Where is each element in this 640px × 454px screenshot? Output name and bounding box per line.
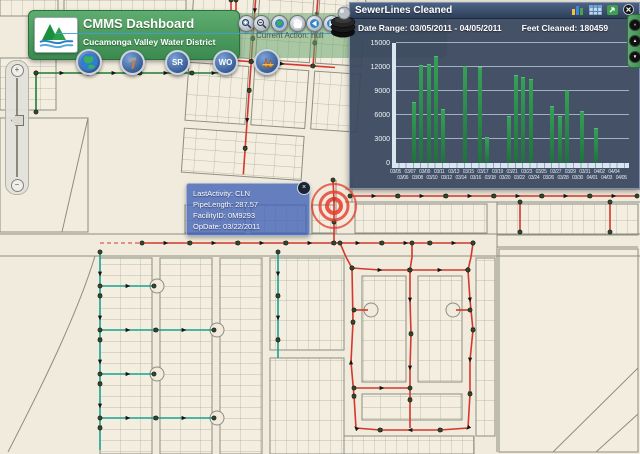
sewer-node [540, 194, 544, 198]
feet-cleaned-label: Feet Cleaned: 180459 [522, 23, 608, 33]
x-axis-baseline [392, 163, 629, 168]
y-axis-tick-label: 0 [358, 160, 390, 167]
sewer-node [352, 386, 356, 390]
selection-bullseye-marker [307, 179, 361, 238]
current-action-status: Current Action: null [256, 31, 324, 40]
construction-barricade-button[interactable] [254, 49, 280, 75]
y-axis-tick-label: 9000 [358, 88, 390, 95]
bar-03/30[interactable] [580, 111, 584, 163]
bar-03/23[interactable] [529, 79, 533, 163]
sewer-node [154, 416, 158, 420]
bar-03/07[interactable] [412, 102, 416, 163]
zoom-out-button[interactable]: − [11, 179, 24, 192]
sewer-node [311, 64, 315, 68]
sewer-node [471, 328, 475, 332]
popup-close-icon[interactable]: × [297, 181, 311, 195]
x-axis-tick-label: 03/16 [468, 175, 483, 181]
sewer-node [438, 428, 442, 432]
bar-03/27[interactable] [558, 116, 562, 163]
sewer-node [98, 338, 102, 342]
scroll-down-button[interactable]: ▼ [629, 51, 640, 63]
sewer-lines-cleaned-panel: SewerLines Cleaned Date Range: 03/05/201… [349, 2, 640, 189]
chart-panel-titlebar[interactable]: SewerLines Cleaned [350, 3, 639, 19]
service-request-button[interactable]: SR [165, 50, 190, 75]
y-axis-tick-label: 12000 [358, 64, 390, 71]
x-axis-tick-label: 04/03 [599, 175, 614, 181]
tools-hammer-button[interactable] [120, 50, 145, 75]
pan-hand-icon[interactable] [289, 15, 306, 32]
chart-gridline [396, 66, 629, 67]
sewer-node [98, 416, 102, 420]
sewer-node [635, 194, 639, 198]
sewer-node [380, 241, 384, 245]
popup-attribute-line: PipeLength: 287.57 [193, 199, 303, 210]
bar-03/16[interactable] [478, 67, 482, 163]
zoom-out-icon[interactable] [253, 15, 270, 32]
sewer-node [518, 230, 522, 234]
x-axis-tick-label: 03/06 [395, 175, 410, 181]
sewer-node [234, 0, 238, 2]
bar-chart-plot-area: 03000600090001200015000 [392, 43, 629, 163]
sewer-node [332, 241, 336, 245]
bar-03/26[interactable] [550, 106, 554, 163]
sewer-node [247, 88, 251, 92]
service-request-label: SR [172, 58, 183, 67]
bar-chart-view-icon[interactable] [572, 2, 584, 20]
map-zoom-slider[interactable]: + − [5, 60, 29, 195]
sewer-node [492, 194, 496, 198]
bar-03/28[interactable] [565, 90, 569, 163]
full-extent-icon[interactable] [271, 15, 288, 32]
chart-info-row: Date Range: 03/05/2011 - 04/05/2011 Feet… [358, 23, 628, 33]
zoom-slider-thumb[interactable] [11, 115, 24, 126]
popup-attribute-line: OpDate: 03/22/2011 [193, 221, 303, 232]
previous-extent-icon[interactable] [306, 15, 323, 32]
sewer-node [249, 59, 253, 63]
app-title: CMMS Dashboard [83, 16, 194, 31]
sewer-node [243, 146, 247, 150]
feature-info-popup: LastActivity: CLNPipeLength: 287.57Facil… [186, 183, 310, 236]
sewer-node [276, 250, 280, 254]
x-axis-tick-label: 03/18 [483, 175, 498, 181]
bar-03/09[interactable] [427, 64, 431, 163]
sewer-node [98, 284, 102, 288]
sewer-node [608, 230, 612, 234]
bar-03/17[interactable] [485, 137, 489, 163]
work-order-button[interactable]: WO [213, 50, 238, 75]
sewer-node [466, 268, 470, 272]
sewer-node [444, 194, 448, 198]
sewer-node [154, 328, 158, 332]
sewer-node [276, 338, 280, 342]
sewer-node [588, 194, 592, 198]
layers-stack-icon[interactable] [329, 5, 359, 46]
zoom-in-button[interactable]: + [11, 64, 24, 77]
sewer-node [98, 382, 102, 386]
sewer-node [410, 241, 414, 245]
data-table-view-icon[interactable] [589, 2, 602, 20]
sewer-node [98, 328, 102, 332]
right-panel-collapse-strip: » ▲ ▼ [627, 14, 640, 68]
sewer-node [378, 428, 382, 432]
sewer-node [140, 241, 144, 245]
sewer-node [276, 294, 280, 298]
collapse-right-button[interactable]: » [629, 19, 640, 31]
chart-gridline [396, 90, 629, 91]
bar-03/10[interactable] [434, 56, 438, 163]
y-axis-tick-label: 15000 [358, 40, 390, 47]
export-icon[interactable] [607, 2, 618, 20]
work-order-label: WO [219, 58, 233, 67]
sewer-node [468, 308, 472, 312]
sewer-node [152, 284, 156, 288]
bar-03/20[interactable] [507, 116, 511, 163]
sewer-node [352, 394, 356, 398]
bar-03/22[interactable] [521, 77, 525, 163]
sewer-node [468, 392, 472, 396]
bar-04/01[interactable] [594, 128, 598, 163]
sewer-node [212, 328, 216, 332]
chart-gridline [396, 42, 629, 43]
x-axis-tick-label: 03/28 [555, 175, 570, 181]
cmms-dashboard-app: CMMS Dashboard Cucamonga Valley Water Di… [0, 0, 640, 454]
cvwd-logo [34, 17, 78, 53]
sewer-node [351, 320, 355, 324]
popup-attribute-line: LastActivity: CLN [193, 188, 303, 199]
x-axis-tick-label: 03/10 [424, 175, 439, 181]
x-axis-tick-label: 04/05 [614, 175, 629, 181]
sewer-node [471, 241, 475, 245]
sewer-node [408, 398, 412, 402]
x-axis-tick-label: 03/22 [512, 175, 527, 181]
sewer-node [188, 241, 192, 245]
feature-attributes: LastActivity: CLNPipeLength: 287.57Facil… [187, 184, 309, 236]
x-axis-tick-label: 03/30 [570, 175, 585, 181]
sewer-node [518, 200, 522, 204]
x-axis-tick-label: 03/08 [410, 175, 425, 181]
sewer-node [284, 241, 288, 245]
chart-gridline [396, 114, 629, 115]
scroll-up-button[interactable]: ▲ [629, 35, 640, 47]
sewer-node [408, 268, 412, 272]
sewer-node [212, 416, 216, 420]
sewer-node [428, 241, 432, 245]
sewer-node [190, 71, 194, 75]
sewer-node [152, 372, 156, 376]
basemap-globe-button[interactable] [76, 49, 102, 75]
x-axis-tick-label: 04/01 [585, 175, 600, 181]
sewer-node [98, 372, 102, 376]
bar-03/11[interactable] [441, 109, 445, 163]
x-axis-labels: 03/0503/0603/0703/0803/0903/1003/1103/12… [392, 169, 625, 183]
zoom-slider-track[interactable] [16, 78, 18, 177]
y-axis-tick-label: 3000 [358, 136, 390, 143]
sewer-node [352, 308, 356, 312]
sewer-node [98, 250, 102, 254]
sewer-node [34, 110, 38, 114]
bar-03/14[interactable] [463, 66, 467, 163]
x-axis-tick-label: 03/14 [454, 175, 469, 181]
bar-03/21[interactable] [514, 75, 518, 163]
sewer-node [608, 200, 612, 204]
x-axis-tick-label: 03/12 [439, 175, 454, 181]
x-axis-tick-label: 03/24 [526, 175, 541, 181]
y-axis-tick-label: 6000 [358, 112, 390, 119]
sewer-node [396, 194, 400, 198]
chart-panel-title: SewerLines Cleaned [355, 5, 567, 16]
sewer-node [98, 294, 102, 298]
sewer-node [409, 332, 413, 336]
app-subtitle: Cucamonga Valley Water District [83, 37, 215, 47]
bar-03/08[interactable] [419, 65, 423, 163]
sewer-node [236, 241, 240, 245]
sewer-node [338, 241, 342, 245]
sewer-node [34, 71, 38, 75]
sewer-node [98, 426, 102, 430]
popup-attribute-line: FacilityID: 0M9293 [193, 210, 303, 221]
sewer-node [229, 0, 233, 2]
x-axis-tick-label: 03/26 [541, 175, 556, 181]
x-axis-tick-label: 03/20 [497, 175, 512, 181]
sewer-node [350, 266, 354, 270]
date-range-label: Date Range: 03/05/2011 - 04/05/2011 [358, 23, 502, 33]
sewer-node [408, 386, 412, 390]
